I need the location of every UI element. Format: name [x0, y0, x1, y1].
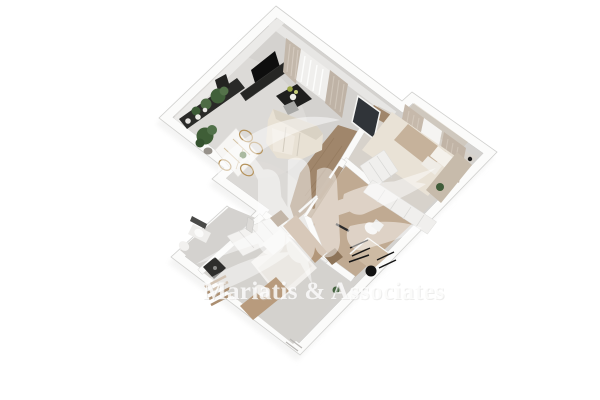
svg-text:Mariatis & Associates: Mariatis & Associates: [203, 278, 445, 305]
